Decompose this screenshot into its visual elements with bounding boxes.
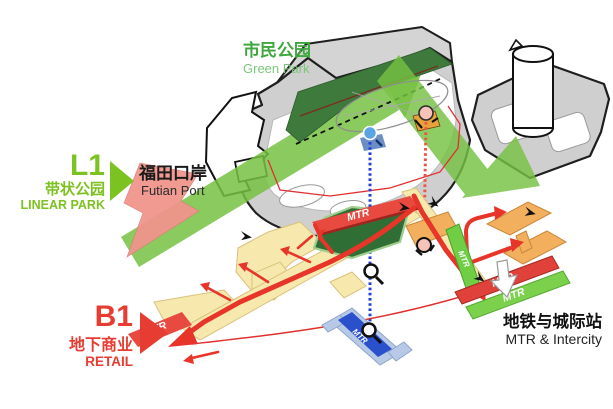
green-park-en: Green Park bbox=[243, 61, 310, 76]
l1-zh: 带状公园 bbox=[45, 180, 105, 198]
station-en: MTR & Intercity bbox=[506, 331, 602, 347]
retail-slab bbox=[330, 272, 366, 298]
green-park-label: 市民公园 Green Park bbox=[243, 40, 311, 76]
futian-en: Futian Port bbox=[141, 183, 205, 198]
b1-code: B1 bbox=[95, 300, 133, 333]
station-label: 地铁与城际站 MTR & Intercity bbox=[503, 311, 603, 347]
green-park-zh: 市民公园 bbox=[243, 40, 311, 60]
tower-building bbox=[510, 40, 553, 137]
axonometric-diagram: MTR M bbox=[0, 0, 613, 409]
route-loop-lower bbox=[472, 248, 510, 262]
b1-en: RETAIL bbox=[85, 354, 133, 369]
l1-code: L1 bbox=[70, 149, 105, 182]
futian-zh: 福田口岸 bbox=[138, 163, 207, 183]
b1-zh: 地下商业 bbox=[69, 335, 133, 354]
l1-en: LINEAR PARK bbox=[21, 198, 106, 212]
route-branch bbox=[192, 352, 218, 358]
b1-label: B1 地下商业 RETAIL bbox=[69, 300, 168, 369]
station-zh: 地铁与城际站 bbox=[503, 311, 603, 331]
diagram-canvas: MTR M bbox=[0, 0, 613, 409]
futian-port-label: 福田口岸 Futian Port bbox=[138, 163, 207, 198]
l1-label: L1 带状公园 LINEAR PARK bbox=[21, 149, 135, 212]
b1-concourse-node bbox=[365, 265, 384, 285]
